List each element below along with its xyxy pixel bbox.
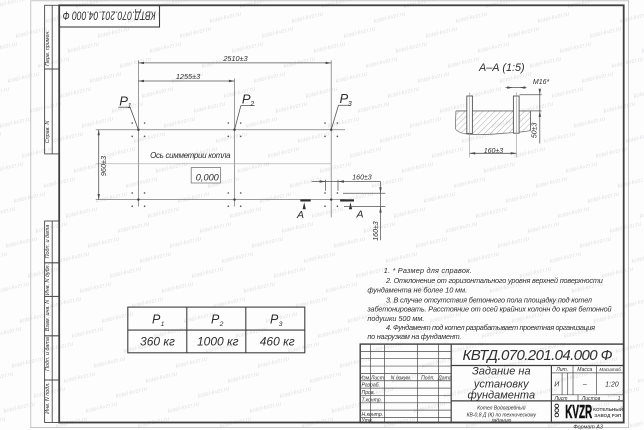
svg-text:КВТД.070.201.04.000 Ф: КВТД.070.201.04.000 Ф (62, 9, 155, 23)
svg-text:3. В случае отсутствия бетонно: 3. В случае отсутствия бетонного пола пл… (386, 295, 592, 304)
svg-text:Изм.: Изм. (360, 375, 371, 381)
svg-text:1: 1 (618, 396, 621, 402)
svg-text:2: 2 (219, 321, 224, 328)
svg-text:Инв. N дубл.: Инв. N дубл. (45, 264, 51, 295)
svg-text:Лист: Лист (370, 375, 384, 381)
svg-text:фундамента не более 10 мм.: фундамента не более 10 мм. (367, 285, 467, 294)
svg-text:2510±3: 2510±3 (222, 54, 247, 63)
svg-text:забетонировать. Расстояние от: забетонировать. Расстояние от осей крайн… (366, 305, 611, 314)
svg-text:360 кг: 360 кг (140, 334, 175, 348)
svg-text:А–А (1:5): А–А (1:5) (478, 62, 525, 74)
svg-text:Т.контр.: Т.контр. (362, 397, 383, 403)
svg-text:Задание на: Задание на (472, 365, 531, 377)
svg-text:Подп. и дата: Подп. и дата (45, 337, 51, 371)
svg-text:Масштаб: Масштаб (599, 367, 621, 372)
svg-text:заданию: заданию (490, 418, 511, 424)
svg-text:Утв.: Утв. (362, 418, 374, 424)
svg-text:1:20: 1:20 (605, 381, 619, 388)
svg-text:ЗАВОД РЭП: ЗАВОД РЭП (594, 413, 621, 418)
svg-text:Подп.: Подп. (421, 375, 435, 381)
svg-text:Лит.: Лит. (555, 367, 568, 373)
svg-text:Ось симметрии котла: Ось симметрии котла (150, 151, 231, 160)
svg-text:960±3: 960±3 (99, 156, 108, 176)
svg-text:КОТЕЛЬНЫЙ: КОТЕЛЬНЫЙ (593, 405, 623, 412)
svg-text:Подп. и дата: Подп. и дата (45, 225, 51, 259)
svg-text:–: – (582, 381, 587, 388)
svg-text:Дата: Дата (437, 375, 452, 381)
svg-text:160±3: 160±3 (484, 148, 504, 155)
svg-text:160±3: 160±3 (352, 174, 372, 181)
svg-text:M16*: M16* (533, 79, 550, 86)
svg-text:Котел Водогрейный: Котел Водогрейный (477, 405, 526, 412)
svg-text:Масса: Масса (577, 367, 592, 373)
svg-text:Листов: Листов (581, 396, 601, 402)
svg-text:Справ. N: Справ. N (45, 121, 51, 144)
svg-text:КВТД.070.201.04.000 Ф: КВТД.070.201.04.000 Ф (463, 347, 613, 364)
svg-text:Перв. примен.: Перв. примен. (45, 30, 51, 66)
svg-text:460 кг: 460 кг (260, 334, 295, 348)
svg-text:подушки 500 мм.: подушки 500 мм. (367, 314, 424, 323)
svg-text:0,000: 0,000 (196, 173, 220, 183)
svg-text:1. * Размер для справок.: 1. * Размер для справок. (384, 266, 472, 275)
svg-text:3: 3 (279, 321, 283, 328)
svg-text:1255±3: 1255±3 (176, 72, 200, 81)
svg-text:Лист: Лист (553, 396, 567, 402)
svg-text:2: 2 (249, 101, 254, 108)
svg-text:А: А (356, 209, 364, 221)
svg-text:50±3: 50±3 (532, 123, 539, 139)
svg-text:KVZR: KVZR (565, 402, 592, 422)
svg-text:4. Фундамент под котел разраба: 4. Фундамент под котел разрабатывает про… (386, 323, 595, 332)
svg-text:Разраб.: Разраб. (362, 383, 380, 389)
svg-text:Пров.: Пров. (362, 390, 375, 396)
svg-text:Взам. инв. N: Взам. инв. N (45, 300, 51, 332)
svg-text:3: 3 (348, 101, 352, 108)
svg-text:Формат А3: Формат А3 (573, 424, 603, 430)
svg-text:фундамента: фундамента (468, 390, 536, 402)
svg-text:2. Отклонение от горизонтально: 2. Отклонение от горизонтального уровня … (385, 276, 603, 285)
svg-text:ООО: ООО (554, 403, 561, 417)
svg-text:Инв. N подл.: Инв. N подл. (45, 382, 51, 414)
svg-text:1000 кг: 1000 кг (197, 334, 239, 348)
svg-text:по нагрузкам на фундамент.: по нагрузкам на фундамент. (367, 332, 461, 341)
svg-text:А: А (296, 209, 304, 221)
svg-text:160±3: 160±3 (373, 221, 380, 241)
svg-text:1: 1 (161, 321, 165, 328)
svg-text:N докум.: N докум. (391, 375, 412, 381)
